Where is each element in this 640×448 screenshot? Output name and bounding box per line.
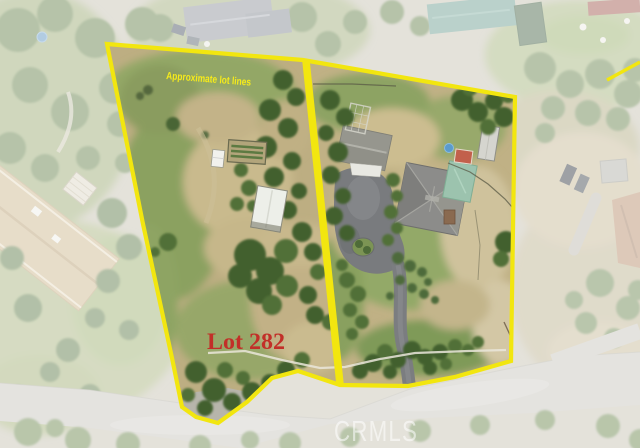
trailer (211, 149, 225, 167)
red-playhouse (454, 149, 473, 164)
crmls-watermark: CRMLS (334, 416, 418, 448)
aerial-property-photo: Approximate lot lines Lot 282 CRMLS (0, 0, 640, 448)
driveway-island (352, 238, 374, 256)
lot-282-label: Lot 282 (207, 329, 285, 354)
chimney (444, 210, 455, 224)
fenced-garden (227, 140, 266, 165)
kiddie-pool (445, 144, 454, 153)
